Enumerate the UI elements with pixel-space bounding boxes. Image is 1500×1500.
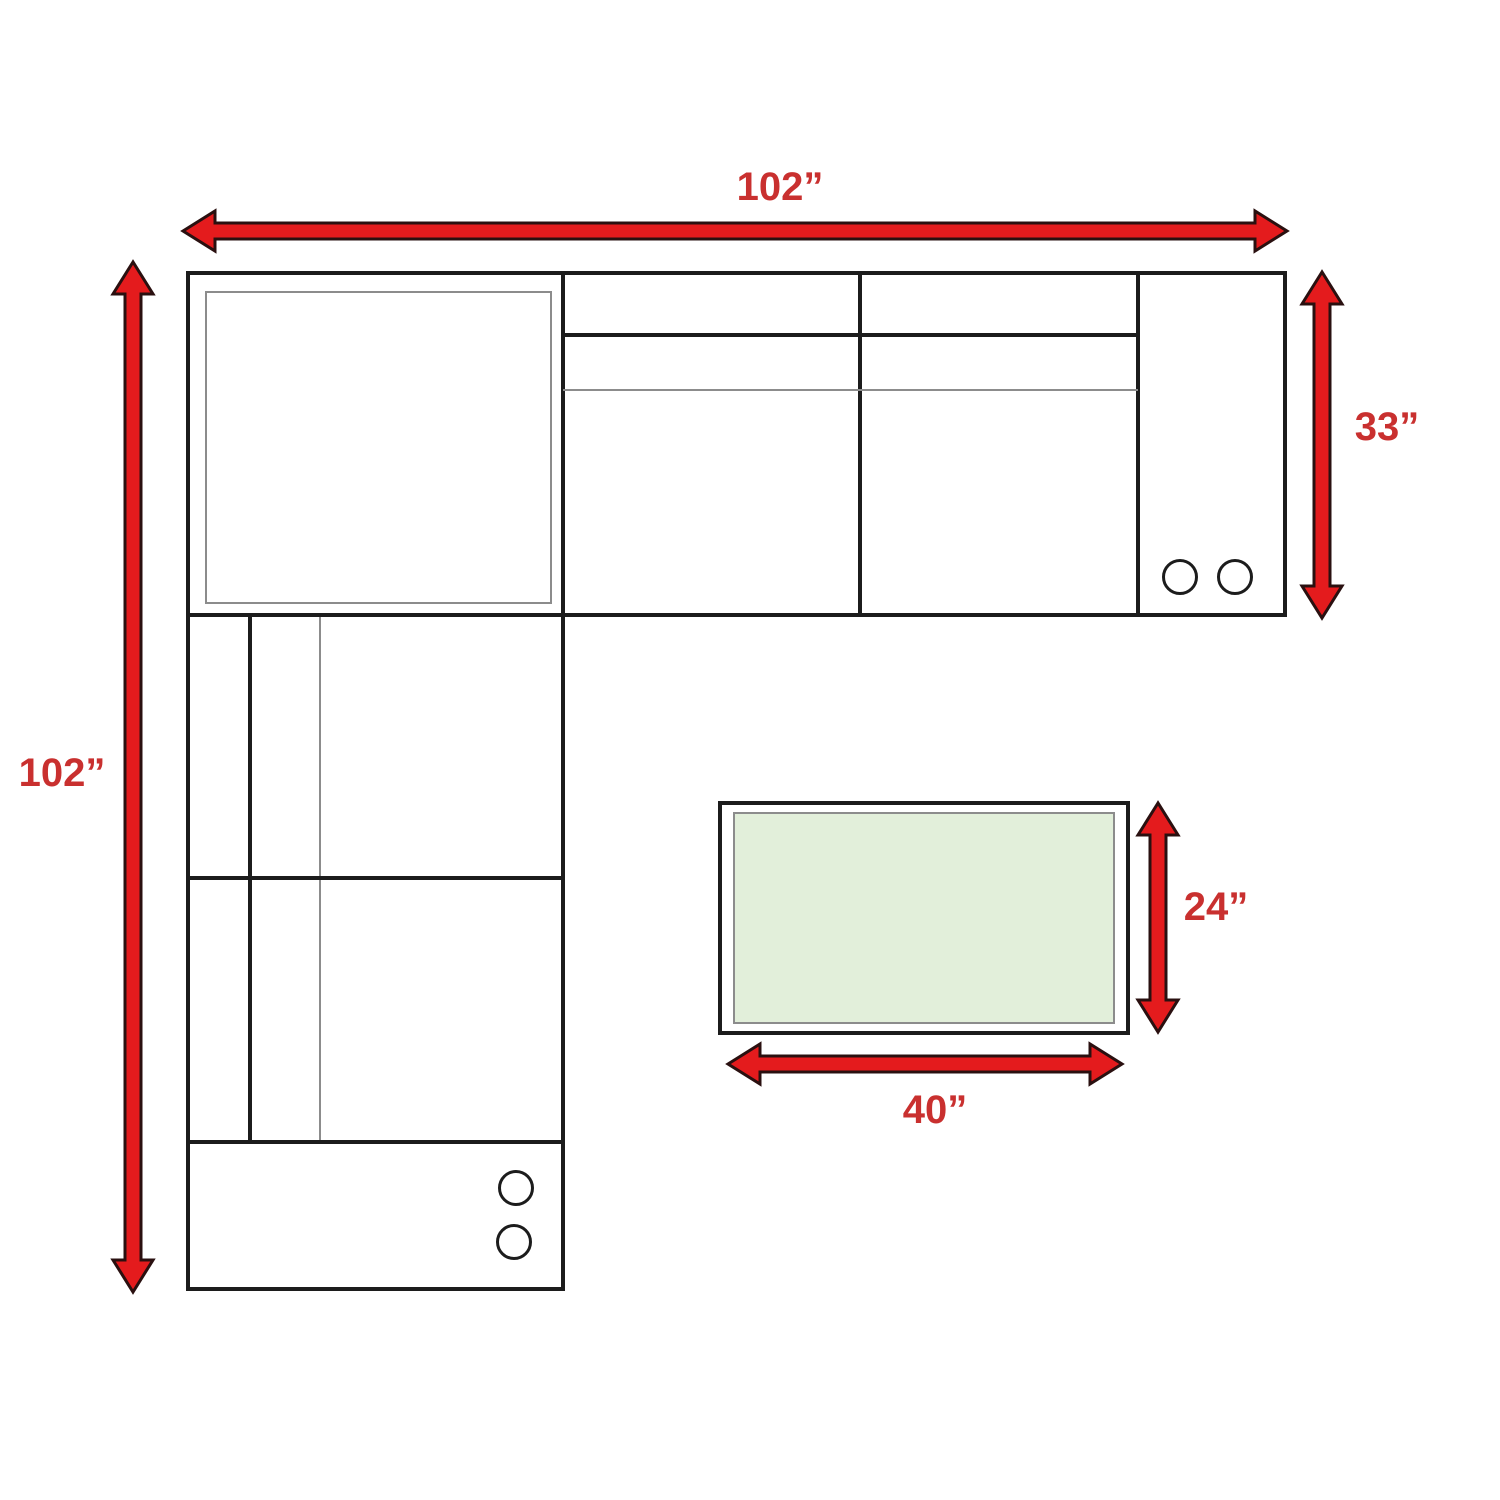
seat-cushion-line xyxy=(563,389,1138,391)
cup-holder-icon xyxy=(498,1170,534,1206)
corner-seat-cushion xyxy=(205,291,552,604)
seat-back-line xyxy=(563,333,1138,337)
sofa-depth-label: 102” xyxy=(2,753,122,793)
seat-divider-corner xyxy=(561,273,565,615)
table-width-label: 40” xyxy=(875,1090,995,1130)
floor-plan: 102” 102” 33” 24” 40” xyxy=(0,0,1500,1500)
table-depth-label: 24” xyxy=(1156,887,1276,927)
table-width-arrow xyxy=(728,1044,1122,1084)
sofa-width-label: 102” xyxy=(720,167,840,207)
seat-divider-console xyxy=(1136,273,1140,615)
seat-depth-label: 33” xyxy=(1327,407,1447,447)
cup-holder-icon xyxy=(1217,559,1253,595)
seat-divider-middle xyxy=(858,273,862,615)
coffee-table-top xyxy=(733,812,1115,1024)
sofa-width-arrow xyxy=(183,211,1287,251)
chaise-seat-divider xyxy=(186,876,565,880)
cup-holder-icon xyxy=(1162,559,1198,595)
cup-holder-icon xyxy=(496,1224,532,1260)
chaise-console-divider xyxy=(186,1140,565,1144)
